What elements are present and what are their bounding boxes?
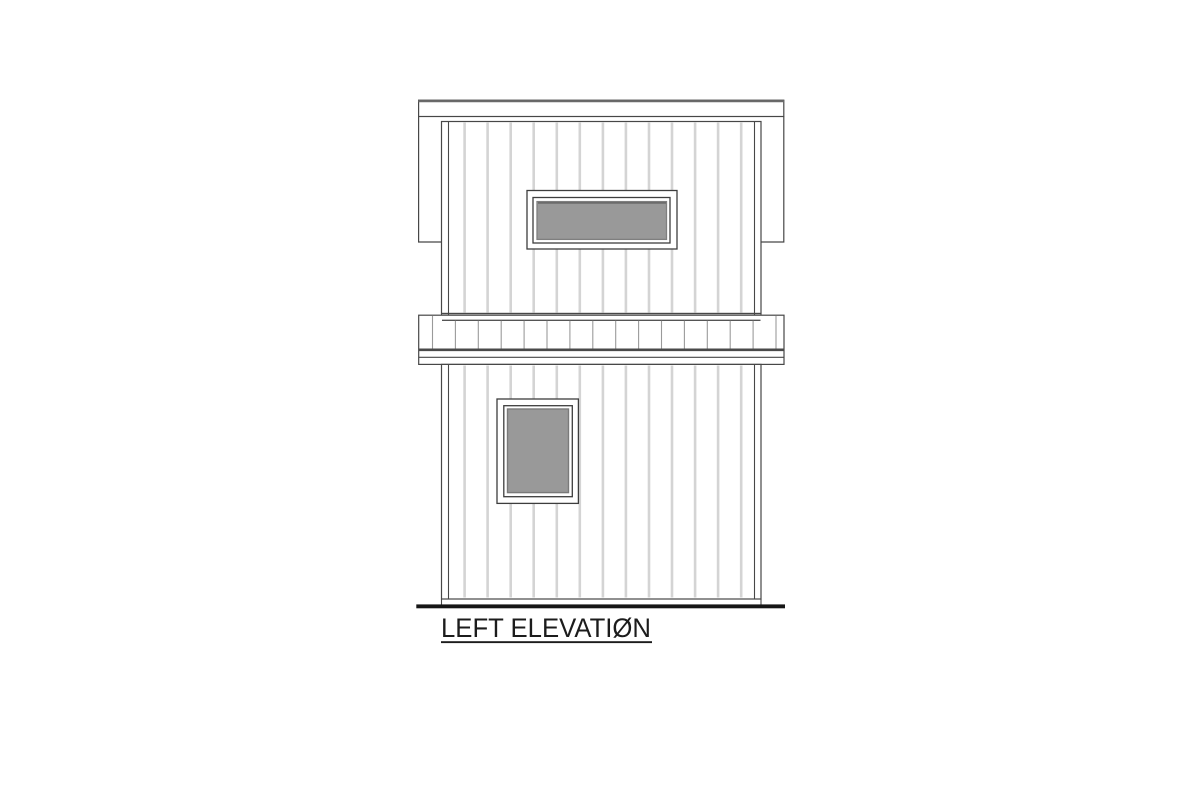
svg-text:LEFT ELEVATIØN: LEFT ELEVATIØN [441, 613, 651, 643]
